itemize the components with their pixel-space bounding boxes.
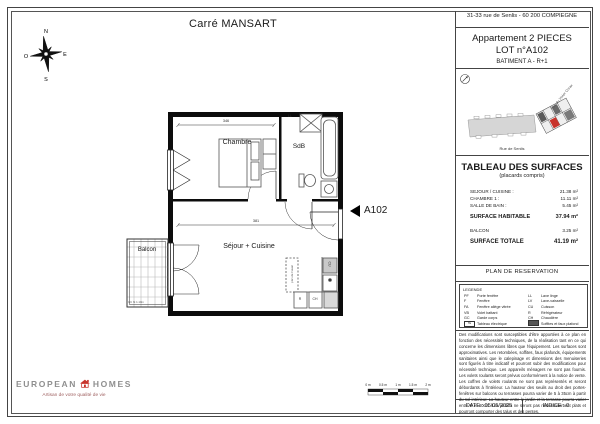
bed-icon (219, 139, 276, 187)
room-label-sejour: Séjour + Cuisine (223, 243, 275, 250)
lot-number: LOT n°A102 (496, 45, 548, 56)
room-label-chambre: Chambre (223, 139, 252, 146)
surface-label: SURFACE TOTALE (470, 239, 524, 245)
room-label-balcon: Balcon (138, 247, 156, 253)
surface-value: 11.11 m² (561, 196, 578, 201)
tb-line-5 (456, 281, 589, 282)
surface-value: 5.45 m² (562, 203, 578, 208)
surface-row-habitable: SURFACE HABITABLE 37.94 m² (470, 214, 578, 220)
entrance-door-arc (310, 209, 343, 240)
washing-machine-label: LL (288, 114, 292, 118)
scale-label-0: 0 m (365, 383, 370, 387)
surface-value: 3.25 m² (562, 228, 578, 233)
legend-item: Soffites et faux plafond (528, 321, 586, 327)
bathroom-fixtures (299, 114, 338, 197)
tb-line-1 (456, 27, 589, 28)
surfaces-title: TABLEAU DES SURFACES (461, 162, 582, 173)
toilet-icon (299, 174, 304, 187)
plan-sheet: Carré MANSART N E S O (0, 0, 600, 424)
soffit-swatch-icon (528, 320, 539, 326)
legend-title: LEGENDE (463, 287, 482, 292)
legend-col2: LLLave linge LVLave-vaisselle CUCuisson … (528, 293, 586, 327)
surface-label: SEJOUR / CUISINE : (470, 189, 514, 194)
dim-sejour: 381 (253, 219, 259, 223)
building-floor: BATIMENT A - R+1 (496, 59, 547, 65)
lot-marker-label: A102 (364, 205, 387, 216)
surface-row-totale: SURFACE TOTALE 41.19 m² (470, 239, 578, 245)
brand-name-right: HOMES (93, 379, 132, 389)
legend-col1: PFPorte fenêtre FFenêtre FAFenêtre allèg… (464, 293, 524, 327)
tb-line-4 (456, 265, 589, 266)
kitchen-note: plan de travail (290, 258, 294, 290)
surface-value: 41.19 m² (554, 239, 578, 245)
surface-row-chambre: CHAMBRE 1 : 11.11 m² (470, 196, 578, 201)
indice-field: INDICE : 0 (543, 403, 569, 409)
surface-label: SURFACE HABITABLE (470, 214, 530, 220)
cooktop-label: CU (328, 261, 332, 266)
boiler-label: CH (312, 297, 317, 301)
scale-label-2: 2 m (425, 383, 430, 387)
brand-tagline: Artisan de votre qualité de vie (16, 393, 132, 398)
surface-row-sejour: SEJOUR / CUISINE : 21.38 m² (470, 189, 578, 194)
house-icon (80, 376, 90, 391)
building-footprint (468, 113, 536, 138)
scale-label-05: 0.5 m (379, 383, 387, 387)
surface-label: BALCON (470, 228, 489, 233)
surface-label: SALLE DE BAIN : (470, 203, 507, 208)
north-indicator-icon (461, 75, 470, 84)
date-field: DATE : 05/05/2025 (466, 403, 512, 409)
surface-row-sdb: SALLE DE BAIN : 5.45 m² (470, 203, 578, 208)
scale-bar (368, 389, 428, 395)
scale-label-15: 1.5 m (409, 383, 417, 387)
balcony-french-door (168, 243, 200, 296)
reservation-title: PLAN DE RESERVATION (486, 269, 559, 275)
dim-chambre: 346 (223, 119, 229, 123)
brand-logo: EUROPEAN HOMES Artisan de votre qualité … (16, 376, 132, 398)
surface-value: 21.38 m² (560, 189, 578, 194)
electrical-panel-icon: TE (464, 321, 475, 327)
bedroom-window (168, 150, 191, 190)
legend-item: TETableau électrique (464, 321, 524, 327)
disclaimer-text: Des modifications sont susceptibles d'êt… (459, 332, 586, 396)
room-label-sdb: SdB (293, 143, 305, 150)
project-address: 31-33 rue de Senlis - 60 200 COMPIEGNE (467, 13, 577, 19)
scale-label-1: 1 m (395, 383, 400, 387)
tb-line-6 (456, 330, 589, 331)
tb-line-2 (456, 68, 589, 69)
balcony-note: GC ht 1.10m (128, 300, 168, 304)
street-label-bottom: Rue de Senlis (500, 146, 525, 151)
surface-value: 37.94 m² (556, 214, 578, 220)
legend-box: LEGENDE PFPorte fenêtre FFenêtre FAFenêt… (459, 284, 588, 328)
brand-name-left: EUROPEAN (16, 379, 77, 389)
surface-label: CHAMBRE 1 : (470, 196, 499, 201)
sink-icon (323, 275, 337, 291)
apartment-type: Appartement 2 PIECES (472, 33, 572, 44)
surfaces-subtitle: (placards compris) (499, 173, 544, 179)
surface-row-balcon: BALCON 3.25 m² (470, 228, 578, 233)
lot-pointer-icon (350, 205, 360, 217)
fridge-label: R (299, 297, 302, 301)
